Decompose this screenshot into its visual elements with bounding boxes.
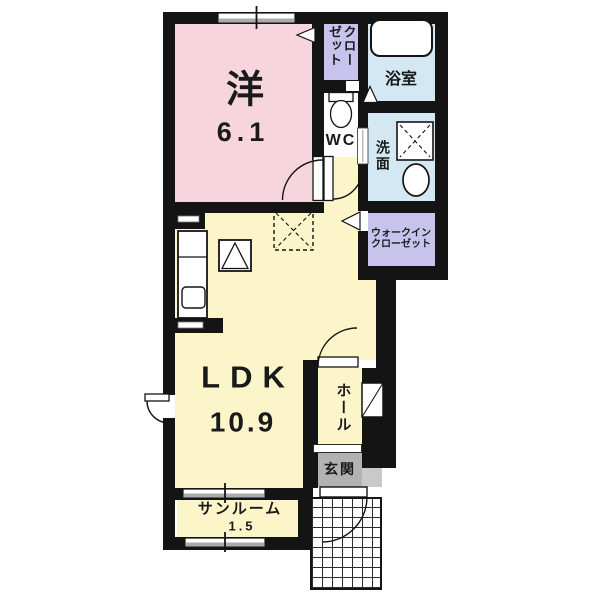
bathtub-icon <box>371 20 432 56</box>
western-room-size: 6.1 <box>217 117 270 147</box>
closet-door-triangle-icon <box>297 28 315 43</box>
entrance-label: 玄関 <box>324 462 356 478</box>
toilet-icon <box>329 93 353 128</box>
western-room-label: 洋 <box>226 70 264 113</box>
toilet-label: WC <box>326 132 357 150</box>
ldk-size: 10.9 <box>210 406 277 437</box>
bathroom-label: 浴室 <box>385 71 417 89</box>
walk-in-closet-label: ウォークイン クローゼット <box>371 228 431 250</box>
washroom-sliding-door-icon <box>358 128 369 164</box>
sunroom-label: サンルーム <box>198 502 283 519</box>
front-door-icon <box>320 487 367 542</box>
washing-machine-pan-icon <box>397 122 433 160</box>
hall-label: ホール <box>334 383 351 434</box>
hall-door-icon <box>318 328 358 367</box>
western-room-door-icon <box>283 157 324 201</box>
toilet-door-icon <box>324 157 362 201</box>
window-top-icon <box>218 6 295 29</box>
washroom-label: 洗面 <box>374 140 390 172</box>
ldk-label: LDK <box>201 361 295 396</box>
west-exterior-door-icon <box>145 394 169 423</box>
sunroom-size: 1.5 <box>228 520 255 535</box>
symbols-layer <box>0 0 600 600</box>
window-sunroom-bottom-icon <box>185 532 265 552</box>
wic-door-triangle-icon <box>342 212 360 230</box>
sink-basin-icon <box>403 164 429 196</box>
closet-label: クロー ゼット <box>326 25 355 67</box>
refrigerator-space-icon <box>219 240 251 271</box>
shoe-cabinet-icon <box>362 383 383 417</box>
window-kitchen-slit-bottom-icon <box>178 322 203 328</box>
floor-plan: 洋 6.1 クロー ゼット 浴室 WC 洗面 ウォークイン クローゼット LDK… <box>0 0 600 600</box>
bath-door-triangle-icon <box>363 87 378 103</box>
window-kitchen-slit-top-icon <box>178 216 199 222</box>
overhead-cabinet-dashed-icon <box>274 211 313 250</box>
kitchen-counter-icon <box>178 231 207 318</box>
